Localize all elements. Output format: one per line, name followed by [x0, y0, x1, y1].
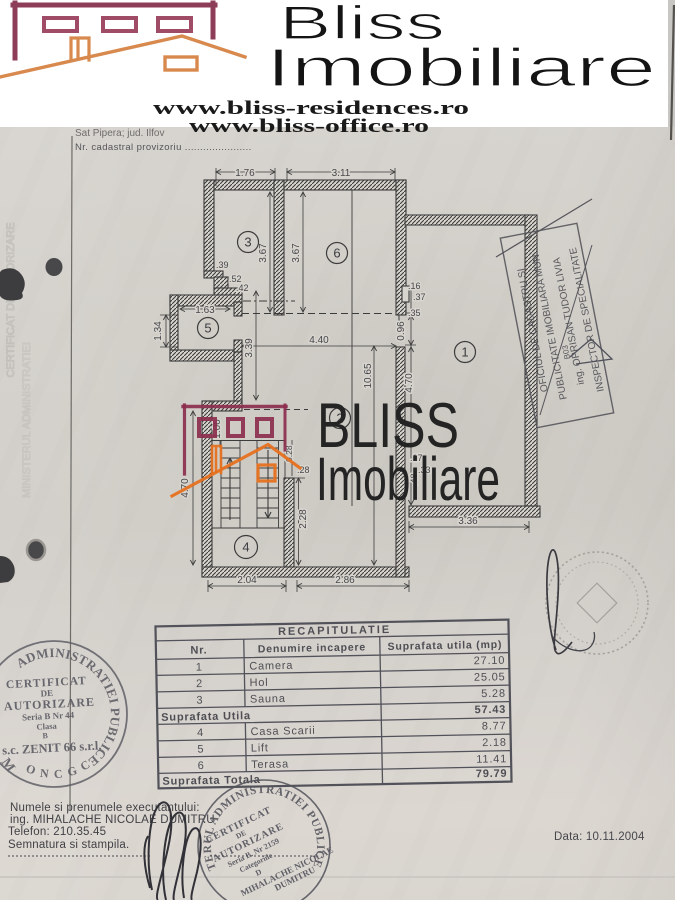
svg-text:4.70: 4.70	[404, 373, 415, 393]
svg-text:Sat Pipera; jud. Ilfov: Sat Pipera; jud. Ilfov	[75, 128, 165, 139]
svg-text:6: 6	[333, 246, 340, 261]
svg-text:Nr. cadastral provizoriu ....: Nr. cadastral provizoriu ...............…	[75, 142, 252, 153]
svg-text:2.28: 2.28	[298, 509, 309, 529]
svg-text:.16: .16	[408, 281, 421, 291]
svg-text:6: 6	[198, 760, 205, 772]
svg-text:1.76: 1.76	[235, 168, 255, 179]
svg-text:3.39: 3.39	[244, 338, 255, 358]
svg-text:1.34: 1.34	[153, 321, 164, 341]
svg-text:Nr.: Nr.	[190, 644, 207, 656]
svg-text:www.bliss-office.ro: www.bliss-office.ro	[189, 116, 429, 137]
svg-text:ONCGC: ONCGC	[24, 754, 97, 781]
svg-text:10.65: 10.65	[363, 363, 374, 388]
svg-text:Clasa: Clasa	[36, 721, 58, 732]
svg-text:.35: .35	[408, 308, 421, 318]
svg-text:3.11: 3.11	[332, 168, 351, 179]
svg-text:Denumire incapere: Denumire incapere	[258, 641, 366, 655]
svg-text:4: 4	[242, 540, 249, 555]
svg-text:Camera: Camera	[249, 660, 293, 673]
svg-text:25.05: 25.05	[474, 671, 506, 684]
svg-text:4: 4	[197, 727, 204, 739]
svg-text:Suprafata Utila: Suprafata Utila	[161, 710, 251, 724]
svg-text:3.67: 3.67	[258, 243, 269, 263]
svg-text:.39: .39	[216, 260, 229, 270]
svg-text:2.04: 2.04	[237, 575, 257, 586]
svg-text:.42: .42	[236, 283, 249, 293]
svg-text:1: 1	[461, 345, 468, 360]
svg-text:D: D	[254, 867, 263, 878]
svg-text:27.10: 27.10	[474, 655, 506, 668]
svg-text:Sauna: Sauna	[250, 693, 286, 706]
svg-text:Lift: Lift	[251, 742, 269, 754]
svg-text:s.c. ZENIT 66 s.r.l.: s.c. ZENIT 66 s.r.l.	[2, 738, 102, 757]
svg-text:Imobiliare: Imobiliare	[266, 38, 656, 98]
svg-text:Terasa: Terasa	[251, 758, 289, 771]
svg-text:5: 5	[197, 743, 204, 755]
svg-text:11.41: 11.41	[476, 753, 507, 766]
svg-text:3: 3	[196, 695, 203, 707]
svg-text:3.67: 3.67	[291, 243, 302, 263]
svg-text:2.86: 2.86	[335, 575, 355, 586]
svg-text:2: 2	[196, 678, 203, 690]
svg-text:Telefon: 210.35.45: Telefon: 210.35.45	[8, 826, 106, 838]
svg-text:3: 3	[244, 235, 251, 250]
svg-text:2.18: 2.18	[482, 737, 507, 749]
svg-text:Imobiliare: Imobiliare	[316, 445, 500, 513]
svg-text:B: B	[42, 731, 48, 740]
svg-text:Hol: Hol	[249, 677, 268, 689]
svg-text:1: 1	[196, 662, 203, 674]
svg-text:5: 5	[204, 321, 211, 336]
svg-text:MINISTERUL ADMINISTRATIEI: MINISTERUL ADMINISTRATIEI	[21, 342, 33, 498]
svg-text:M: M	[0, 756, 18, 775]
svg-text:Suprafata utila (mp): Suprafata utila (mp)	[388, 639, 503, 653]
svg-text:RECAPITULATIE: RECAPITULATIE	[278, 624, 391, 638]
svg-text:79.79: 79.79	[476, 768, 508, 781]
svg-text:5.28: 5.28	[481, 688, 506, 700]
svg-text:Suprafata Totala: Suprafata Totala	[162, 774, 260, 788]
svg-text:Semnatura si stampila.: Semnatura si stampila.	[8, 839, 129, 851]
svg-text:Data: 10.11.2004: Data: 10.11.2004	[554, 831, 645, 843]
svg-text:0.96: 0.96	[396, 321, 407, 341]
svg-text:Casa Scarii: Casa Scarii	[250, 725, 315, 738]
svg-text:4.40: 4.40	[309, 335, 329, 346]
svg-text:57.43: 57.43	[475, 704, 507, 717]
svg-text:.37: .37	[413, 292, 426, 302]
svg-text:8.77: 8.77	[482, 720, 507, 732]
svg-text:1.63: 1.63	[195, 305, 215, 316]
svg-text:3.36: 3.36	[458, 516, 478, 527]
